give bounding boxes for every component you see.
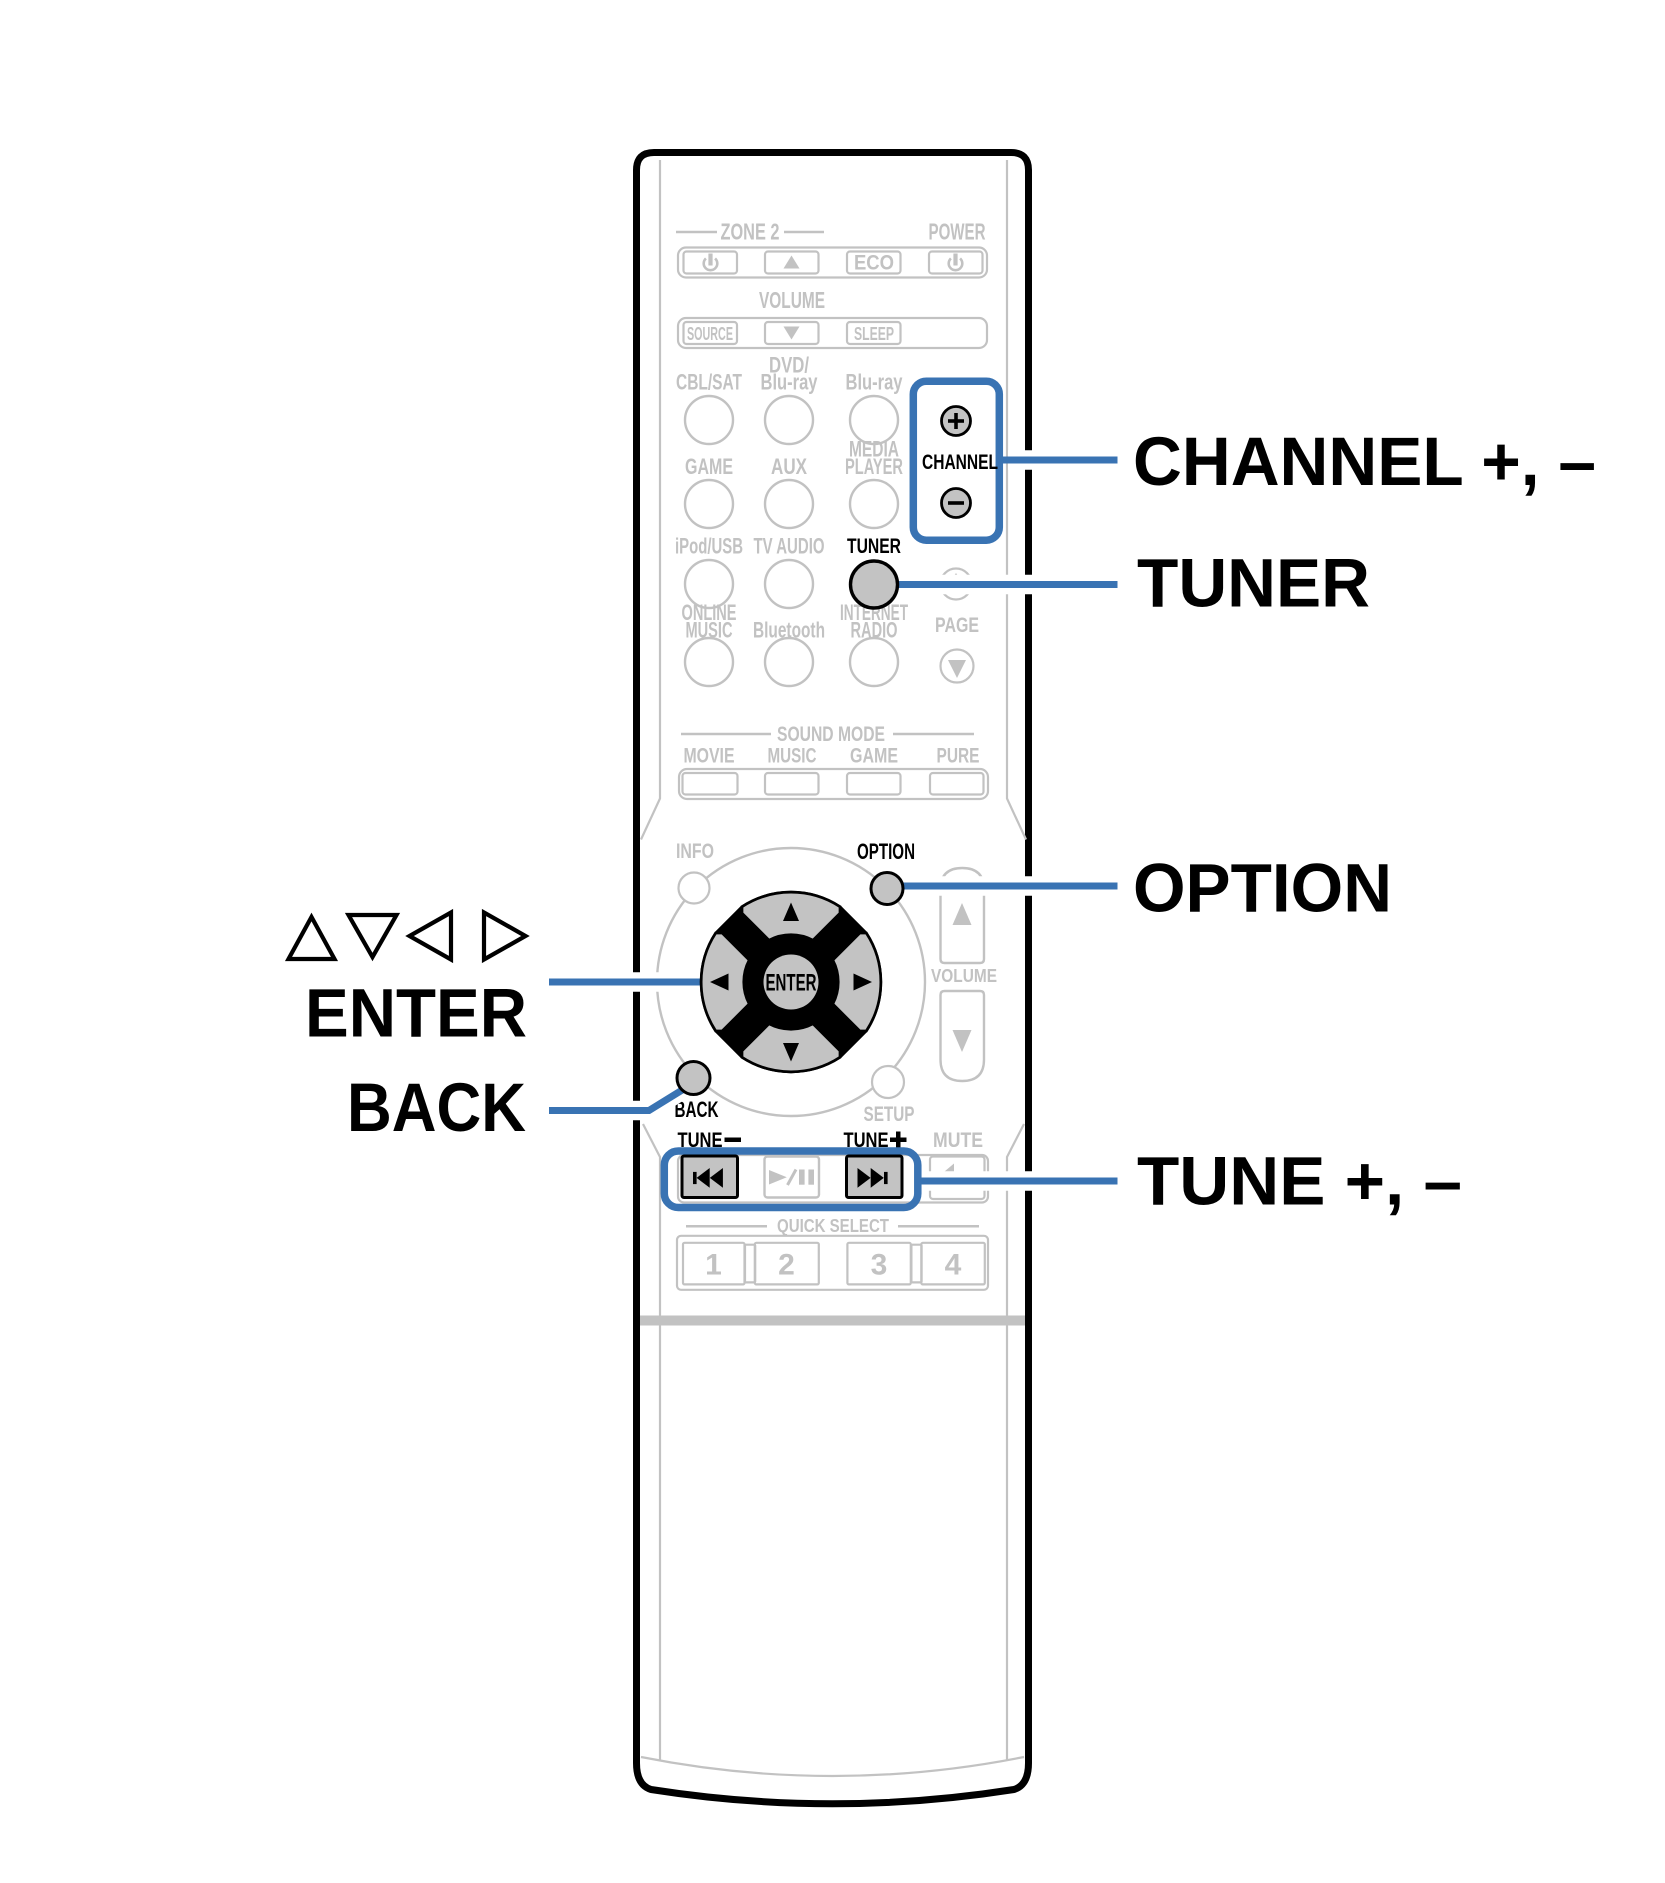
svg-text:SETUP: SETUP: [864, 1103, 915, 1126]
svg-text:2: 2: [778, 1249, 795, 1282]
svg-text:TV AUDIO: TV AUDIO: [754, 534, 825, 559]
svg-text:BACK: BACK: [347, 1069, 526, 1146]
svg-text:VOLUME: VOLUME: [931, 965, 997, 986]
svg-text:MOVIE: MOVIE: [684, 745, 735, 768]
svg-text:CHANNEL: CHANNEL: [922, 451, 998, 474]
svg-text:PLAYER: PLAYER: [845, 454, 903, 479]
svg-text:ENTER: ENTER: [766, 970, 817, 997]
svg-text:4: 4: [945, 1249, 962, 1282]
svg-text:1: 1: [705, 1249, 722, 1282]
svg-text:MUTE: MUTE: [933, 1129, 983, 1152]
svg-text:ZONE 2: ZONE 2: [721, 219, 780, 245]
svg-text:GAME: GAME: [685, 454, 733, 479]
svg-text:AUX: AUX: [771, 454, 807, 479]
svg-text:ENTER: ENTER: [305, 975, 527, 1052]
svg-text:Blu-ray: Blu-ray: [761, 370, 819, 395]
svg-text:Blu-ray: Blu-ray: [846, 370, 904, 395]
svg-text:TUNER: TUNER: [1137, 545, 1370, 622]
svg-text:CBL/SAT: CBL/SAT: [676, 370, 742, 395]
svg-text:3: 3: [871, 1249, 888, 1282]
svg-text:INFO: INFO: [676, 840, 714, 863]
svg-text:SOUND MODE: SOUND MODE: [777, 723, 885, 746]
svg-text:PURE: PURE: [937, 745, 980, 768]
svg-text:OPTION: OPTION: [857, 839, 915, 864]
svg-text:VOLUME: VOLUME: [759, 287, 825, 313]
svg-text:MUSIC: MUSIC: [768, 745, 817, 768]
svg-text:POWER: POWER: [929, 219, 986, 245]
svg-text:QUICK SELECT: QUICK SELECT: [777, 1216, 889, 1236]
svg-text:SLEEP: SLEEP: [854, 323, 894, 344]
svg-text:TUNE +, –: TUNE +, –: [1137, 1143, 1462, 1220]
svg-text:iPod/USB: iPod/USB: [675, 534, 743, 559]
svg-text:GAME: GAME: [850, 745, 898, 768]
svg-text:ECO: ECO: [854, 252, 894, 275]
svg-text:CHANNEL +, –: CHANNEL +, –: [1133, 423, 1596, 500]
svg-text:TUNER: TUNER: [847, 535, 901, 558]
svg-text:SOURCE: SOURCE: [687, 323, 733, 344]
svg-text:PAGE: PAGE: [935, 614, 979, 637]
svg-text:OPTION: OPTION: [1133, 850, 1392, 927]
